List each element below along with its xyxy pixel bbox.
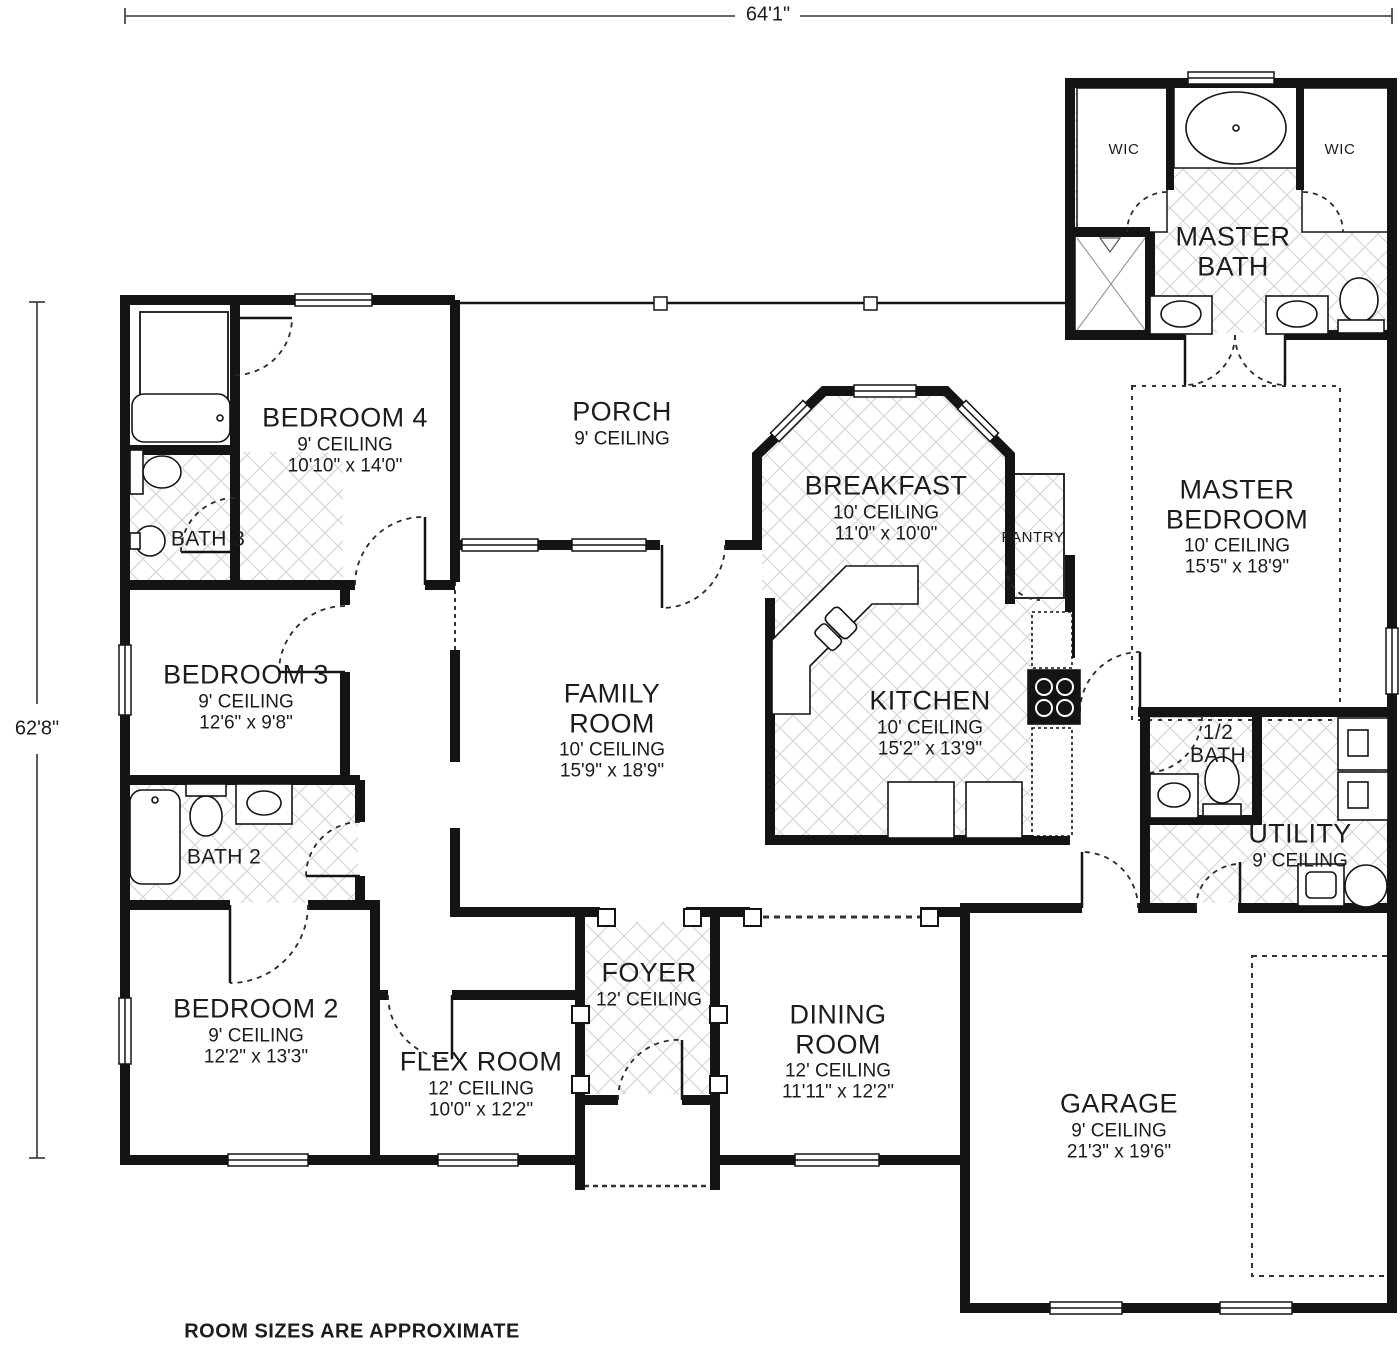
label-line: BATH: [1190, 744, 1246, 767]
label-line: 15'9" x 18'9": [559, 762, 665, 783]
porch-roofline: [455, 297, 1070, 310]
label-line: BATH: [1176, 252, 1291, 282]
label-line: 10'10" x 14'0": [262, 456, 428, 477]
label-line: DINING: [782, 1000, 894, 1030]
column: [684, 909, 701, 926]
label-line: PANTRY: [1001, 530, 1064, 547]
window: [228, 1154, 308, 1166]
label-line: PORCH: [572, 398, 672, 428]
footnote: ROOM SIZES ARE APPROXIMATE: [184, 1321, 520, 1344]
column: [572, 1076, 589, 1093]
room-label-porch: PORCH 9' CEILING: [572, 398, 672, 451]
column: [921, 909, 938, 926]
window: [119, 998, 131, 1064]
sink: [1161, 301, 1201, 327]
room-label-dining-room: DININGROOM 12' CEILING11'11" x 12'2": [782, 1000, 894, 1103]
label-line: 21'3" x 19'6": [1060, 1142, 1178, 1163]
room-label-master-bedroom: MASTERBEDROOM 10' CEILING15'5" x 18'9": [1166, 475, 1308, 578]
label-line: BATH 2: [187, 845, 261, 868]
window: [438, 1154, 518, 1166]
room-label-breakfast: BREAKFAST 10' CEILING11'0" x 10'0": [805, 471, 968, 544]
column: [710, 1006, 727, 1023]
toilet-tank: [186, 784, 226, 796]
label-line: 11'11" x 12'2": [782, 1083, 894, 1104]
room-label-bedroom3: BEDROOM 3 9' CEILING12'6" x 9'8": [163, 660, 329, 733]
upper-cabinet: [1032, 612, 1072, 668]
label-line: 10'0" x 12'2": [400, 1100, 563, 1121]
room-label-wic-right: WIC: [1325, 142, 1356, 159]
room-label-family-room: FAMILYROOM 10' CEILING15'9" x 18'9": [559, 679, 665, 782]
room-label-bedroom2: BEDROOM 2 9' CEILING12'2" x 13'3": [173, 994, 339, 1067]
label-line: 10' CEILING: [559, 741, 665, 762]
toilet-tank: [1338, 320, 1384, 333]
bathtub: [132, 394, 230, 442]
label-line: 12' CEILING: [400, 1079, 563, 1100]
label-line: GARAGE: [1060, 1089, 1178, 1119]
label-line: ROOM: [559, 709, 665, 739]
label-line: BREAKFAST: [805, 471, 968, 501]
dryer-door: [1348, 782, 1368, 808]
window: [1050, 1302, 1122, 1314]
label-line: UTILITY: [1248, 820, 1351, 850]
label-line: 10' CEILING: [869, 718, 990, 739]
window: [1188, 72, 1274, 84]
label-line: WIC: [1325, 142, 1356, 159]
room-label-bath2: BATH 2: [187, 845, 261, 868]
sink: [1277, 301, 1317, 327]
label-line: 15'5" x 18'9": [1166, 558, 1308, 579]
toilet-bowl: [190, 796, 222, 836]
room-label-half-bath: 1/2BATH: [1190, 721, 1246, 767]
label-line: 10' CEILING: [805, 503, 968, 524]
label-line: 12'2" x 13'3": [173, 1047, 339, 1068]
column: [710, 1076, 727, 1093]
wic-right-area: [1302, 88, 1390, 232]
window: [1220, 1302, 1292, 1314]
label-line: MASTER: [1166, 475, 1308, 505]
label-line: 11'0" x 10'0": [805, 524, 968, 545]
upper-cabinet: [1032, 728, 1072, 836]
porch-post: [654, 297, 667, 310]
room-label-master-bath: MASTERBATH: [1176, 222, 1291, 281]
window: [462, 539, 538, 551]
overall-width-dimension: 64'1": [740, 4, 796, 27]
room-label-wic-left: WIC: [1109, 142, 1140, 159]
label-line: 10' CEILING: [1166, 537, 1308, 558]
label-line: 12' CEILING: [782, 1062, 894, 1083]
sink: [1158, 783, 1190, 807]
column: [572, 1006, 589, 1023]
label-line: BEDROOM 2: [173, 994, 339, 1024]
wic-left-area: [1077, 88, 1167, 232]
column: [598, 909, 615, 926]
label-line: WIC: [1109, 142, 1140, 159]
label-line: 1/2: [1190, 721, 1246, 744]
label-line: BEDROOM 3: [163, 660, 329, 690]
tub-faucet: [152, 797, 158, 803]
sink-backsplash: [130, 533, 140, 549]
room-label-pantry: PANTRY: [1001, 530, 1064, 547]
label-line: ROOM: [782, 1030, 894, 1060]
window: [854, 385, 916, 397]
window: [295, 294, 372, 306]
label-line: BATH 3: [171, 527, 245, 550]
window: [572, 539, 646, 551]
label-line: KITCHEN: [869, 686, 990, 716]
label-line: 9' CEILING: [173, 1026, 339, 1047]
toilet-bowl: [143, 456, 181, 488]
sink: [247, 791, 281, 815]
toilet-bowl: [1340, 278, 1378, 322]
label-line: 9' CEILING: [163, 692, 329, 713]
refrigerator: [966, 782, 1022, 838]
label-line: BEDROOM 4: [262, 403, 428, 433]
room-label-garage: GARAGE 9' CEILING21'3" x 19'6": [1060, 1089, 1178, 1162]
room-label-bedroom4: BEDROOM 4 9' CEILING10'10" x 14'0": [262, 403, 428, 476]
label-line: FOYER: [596, 959, 702, 989]
kitchen-island: [888, 782, 954, 838]
bathtub: [130, 790, 180, 884]
label-line: FLEX ROOM: [400, 1047, 563, 1077]
label-line: 9' CEILING: [1060, 1121, 1178, 1142]
label-line: FAMILY: [559, 679, 665, 709]
range-stove: [1028, 670, 1080, 724]
label-line: 9' CEILING: [262, 435, 428, 456]
label-line: 15'2" x 13'9": [869, 739, 990, 760]
room-label-kitchen: KITCHEN 10' CEILING15'2" x 13'9": [869, 686, 990, 759]
label-line: MASTER: [1176, 222, 1291, 252]
label-line: 12' CEILING: [596, 990, 702, 1011]
porch-post: [864, 297, 877, 310]
window: [119, 645, 131, 715]
room-label-flex-room: FLEX ROOM 12' CEILING10'0" x 12'2": [400, 1047, 563, 1120]
garage-dashed-area: [1252, 956, 1388, 1276]
room-label-bath3: BATH 3: [171, 527, 245, 550]
washer-door: [1348, 730, 1368, 756]
column: [744, 909, 761, 926]
tub-faucet: [217, 415, 223, 421]
label-line: BEDROOM: [1166, 505, 1308, 535]
utility-sink-basin: [1306, 872, 1336, 898]
bedroom2-walls: [120, 900, 375, 1000]
label-line: 9' CEILING: [572, 429, 672, 450]
floor-plan: 64'1" 62'8" WIC WIC MASTERBATH BEDROOM 4…: [0, 0, 1400, 1347]
overall-height-dimension: 62'8": [9, 718, 65, 741]
room-label-utility: UTILITY 9' CEILING: [1248, 820, 1351, 873]
window: [795, 1154, 879, 1166]
room-label-foyer: FOYER 12' CEILING: [596, 959, 702, 1012]
toilet-tank: [130, 450, 143, 494]
window: [1386, 628, 1398, 694]
toilet-tank: [1203, 804, 1241, 816]
label-line: 12'6" x 9'8": [163, 713, 329, 734]
label-line: 9' CEILING: [1248, 851, 1351, 872]
tub-drain: [1233, 125, 1239, 131]
